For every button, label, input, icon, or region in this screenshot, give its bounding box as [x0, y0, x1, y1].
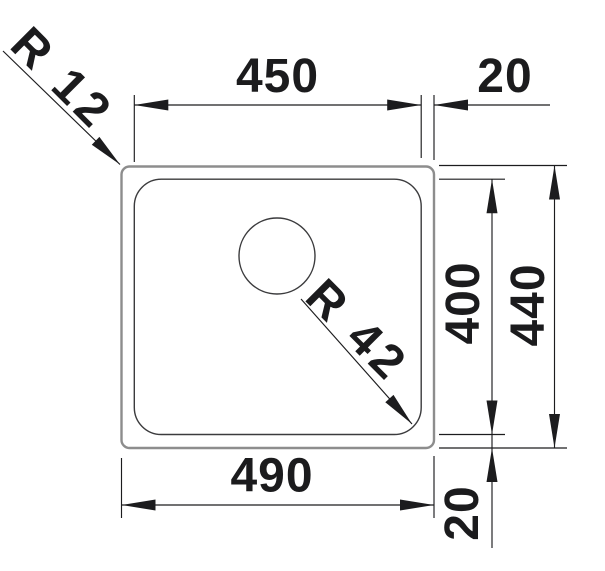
dim-top-450: 450: [134, 50, 421, 162]
dim-450-label: 450: [236, 50, 319, 103]
drawing-canvas: 450 20 400 440 20 490: [0, 0, 605, 571]
arrowhead-left: [122, 500, 156, 511]
arrowhead-left: [434, 100, 468, 111]
dim-20-top-label: 20: [477, 50, 532, 103]
dim-440-label: 440: [502, 263, 555, 346]
arrowhead-up: [549, 166, 560, 200]
radius-r12-label: R 12: [0, 17, 123, 140]
dim-490-label: 490: [230, 450, 313, 503]
arrowhead: [385, 395, 412, 424]
sink-outer-contour: [122, 167, 435, 449]
leader-r42: R 42: [295, 269, 418, 424]
dim-bottom-490: 490: [122, 450, 435, 519]
arrowhead-up: [487, 179, 498, 213]
arrowhead-left: [134, 100, 168, 111]
arrowhead-down: [549, 414, 560, 448]
dim-top-20: 20: [434, 50, 550, 160]
sink-dimension-drawing: 450 20 400 440 20 490: [0, 0, 605, 571]
arrowhead-right: [387, 100, 421, 111]
dim-20-bottom-label: 20: [436, 485, 489, 540]
leader-r12: R 12: [0, 17, 123, 164]
sink-contours: [122, 167, 435, 449]
arrowhead-right: [400, 500, 434, 511]
drain-hole-outline: [239, 218, 315, 294]
arrowhead-up: [487, 448, 498, 482]
arrowhead: [92, 137, 120, 165]
dim-400-label: 400: [437, 261, 490, 344]
dim-bottom-right-20: 20: [436, 448, 498, 541]
arrowhead-down: [487, 401, 498, 435]
radius-r42-label: R 42: [295, 269, 418, 392]
